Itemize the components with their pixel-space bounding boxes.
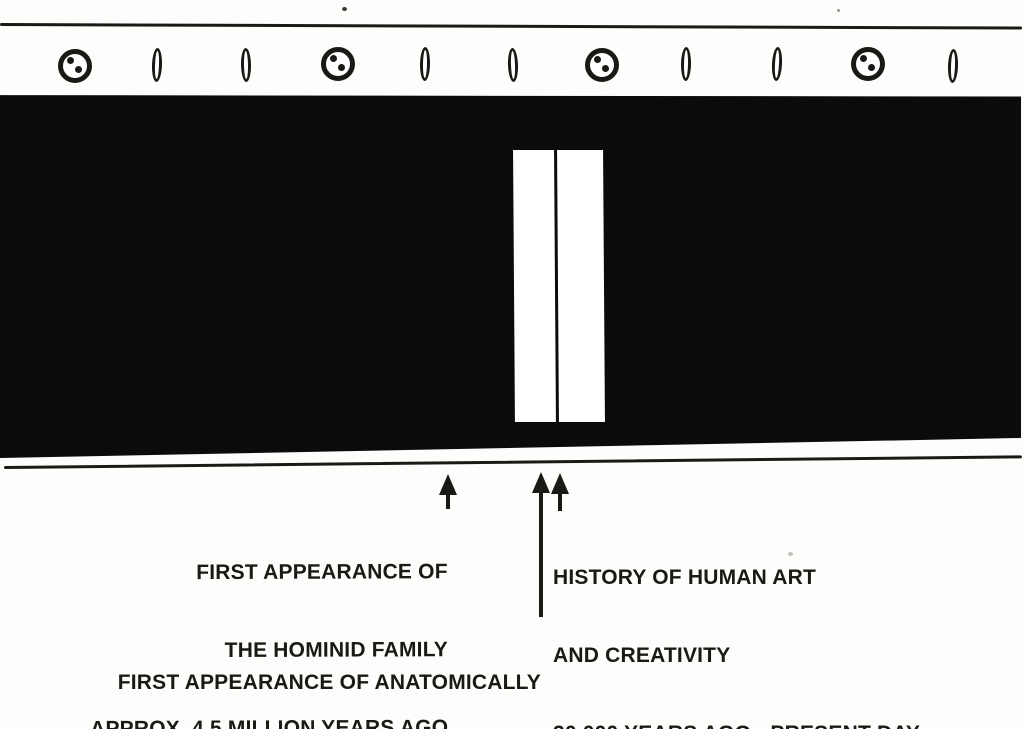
film-button-icon [58, 49, 92, 83]
button-hole-dot [338, 64, 345, 71]
timeline-black-bar [0, 94, 1021, 458]
button-hole-dot [868, 64, 875, 71]
button-hole-dot [75, 66, 82, 73]
annotation-line: AND CREATIVITY [553, 643, 920, 669]
film-button-icon [585, 48, 619, 82]
illustration-canvas: FIRST APPEARANCE OF THE HOMINID FAMILY A… [0, 0, 1024, 729]
filmstrip-perforation-band [0, 26, 1024, 92]
film-slit-icon [771, 47, 783, 81]
film-slit-icon [507, 48, 518, 82]
bottom-border-line [4, 455, 1022, 469]
art-history-up-arrow-icon [551, 473, 569, 511]
annotation-line: HISTORY OF HUMAN ART [553, 565, 920, 591]
button-hole-dot [330, 55, 337, 62]
arrow-head [551, 473, 569, 494]
annotation-line: FIRST APPEARANCE OF ANATOMICALLY [0, 670, 541, 696]
timeline-white-gap [513, 150, 605, 422]
button-hole-dot [594, 56, 601, 63]
arrow-head [439, 474, 457, 495]
film-slit-icon [947, 49, 958, 83]
scan-speck [837, 9, 840, 12]
arrow-head [532, 472, 550, 493]
arrow-stem [539, 493, 543, 617]
annotation-line: FIRST APPEARANCE OF [0, 559, 448, 587]
button-hole-dot [860, 55, 867, 62]
film-slit-icon [420, 47, 431, 81]
film-button-icon [321, 47, 355, 81]
film-slit-icon [151, 48, 162, 82]
modern-humans-up-arrow-icon [532, 472, 550, 617]
modern-humans-annotation: FIRST APPEARANCE OF ANATOMICALLY MODERN … [0, 618, 541, 729]
button-hole-dot [602, 65, 609, 72]
arrow-stem [558, 494, 562, 511]
scan-speck [788, 552, 793, 556]
button-hole-dot [67, 57, 74, 64]
hominid-up-arrow-icon [439, 474, 457, 509]
film-slit-icon [681, 47, 692, 81]
annotation-line: 30,000 YEARS AGO - PRESENT DAY [553, 721, 920, 729]
art-history-annotation: HISTORY OF HUMAN ART AND CREATIVITY 30,0… [553, 513, 920, 729]
film-button-icon [851, 47, 885, 81]
gap-divider-line [554, 150, 559, 422]
film-slit-icon [241, 48, 252, 82]
scan-speck [342, 7, 347, 11]
